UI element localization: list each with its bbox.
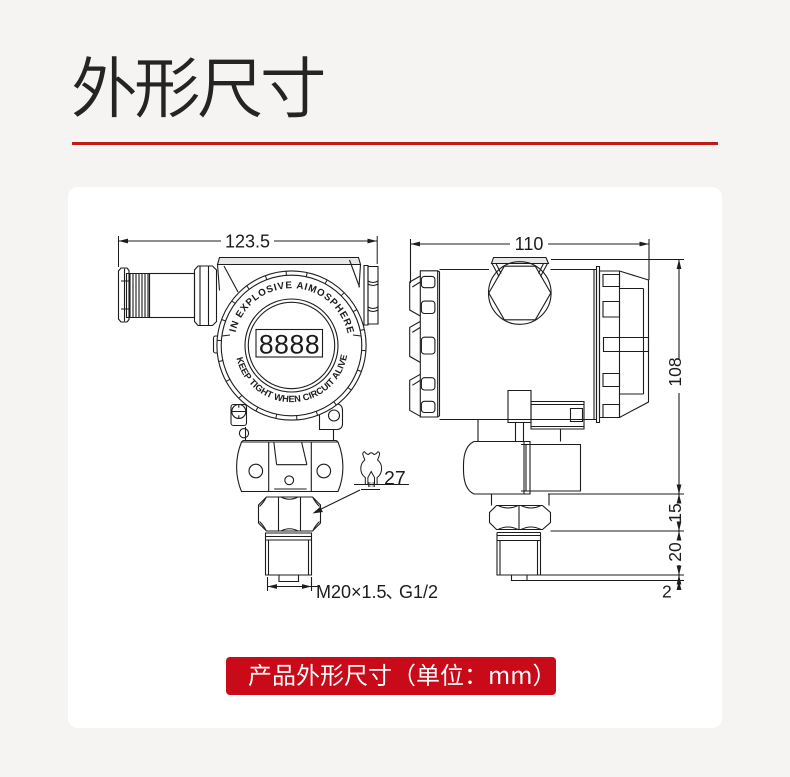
svg-text:2: 2	[662, 582, 672, 602]
svg-text:G1/2: G1/2	[399, 582, 438, 602]
svg-text:8888: 8888	[259, 330, 320, 360]
svg-text:123.5: 123.5	[225, 232, 270, 252]
svg-text:15: 15	[665, 503, 685, 522]
svg-text:108: 108	[665, 357, 685, 386]
svg-text:M20×1.5: M20×1.5	[316, 582, 387, 602]
svg-text:27: 27	[384, 468, 406, 490]
svg-text:110: 110	[515, 234, 544, 254]
svg-text:20: 20	[665, 542, 685, 562]
